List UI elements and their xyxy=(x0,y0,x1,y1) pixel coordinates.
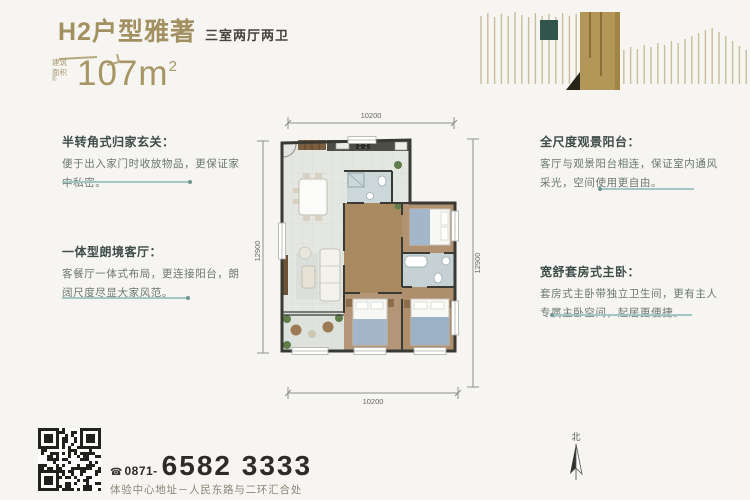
area-value: 107m2 xyxy=(77,56,178,91)
bathtub xyxy=(405,256,427,267)
plant xyxy=(394,161,402,169)
annotation-title: 全尺度观景阳台： xyxy=(540,133,722,150)
bathroom-sink xyxy=(367,193,374,200)
sofa xyxy=(320,249,340,301)
annotation-rule xyxy=(62,181,190,183)
area-superscript: 2 xyxy=(169,58,178,75)
balcony-table xyxy=(308,330,316,338)
registered-icon: ® xyxy=(52,77,56,83)
annotation-livingroom: 一体型朗境客厅： 客餐厅一体式布局，更连接阳台，朗阔尺度尽显大家风范。 xyxy=(62,243,244,303)
skyline-tower xyxy=(566,12,620,90)
fridge xyxy=(395,142,407,150)
dim-bottom-label: 10200 xyxy=(363,397,384,406)
phone-block: ☎ 0871- 6582 3333 xyxy=(110,452,312,480)
toilet xyxy=(434,273,442,283)
dim-right-label: 12900 xyxy=(473,253,482,274)
dim-top-label: 10200 xyxy=(361,111,382,120)
skyline-graphic xyxy=(478,0,750,100)
coffee-table xyxy=(302,266,315,288)
annotation-body: 套房式主卧带独立卫生间，更有主人专属主卧空间，起居更便捷。 xyxy=(540,285,722,323)
rule-dot xyxy=(186,296,190,300)
header: H2户型雅著 三室两厅两卫 xyxy=(58,12,289,48)
qr-code xyxy=(38,428,101,491)
annotation-entry: 半转角式归家玄关： 便于出入家门时收放物品，更保证家中私密。 xyxy=(62,133,244,193)
address-line: 体验中心地址－人民东路与二环汇合处 xyxy=(110,482,302,497)
nightstand xyxy=(346,299,352,307)
room-hallway xyxy=(344,203,402,293)
toilet xyxy=(378,176,386,186)
annotation-title: 宽舒套房式主卧： xyxy=(540,263,722,280)
tv-cabinet xyxy=(283,255,288,295)
armchair xyxy=(299,247,311,259)
page-subtitle: 三室两厅两卫 xyxy=(205,25,289,44)
annotation-body: 便于出入家门时收放物品，更保证家中私密。 xyxy=(62,155,244,193)
plant xyxy=(283,341,291,349)
poster: H2户型雅著 三室两厅两卫 建筑面积® 107m2 半转角式归家玄关： 便于出入… xyxy=(0,0,750,500)
nightstand xyxy=(388,299,394,307)
annotation-title: 半转角式归家玄关： xyxy=(62,133,244,150)
dim-left-label: 12900 xyxy=(253,241,262,262)
floorplan-svg: 10200 10200 12900 12900 xyxy=(252,103,484,408)
nightstand xyxy=(404,300,410,308)
rule-dot xyxy=(598,187,602,191)
bed-blanket xyxy=(353,319,387,345)
area-block: 建筑面积® 107m2 xyxy=(52,56,178,91)
bed-blanket xyxy=(411,317,449,345)
annotation-rule xyxy=(552,314,692,316)
phone-icon: ☎ xyxy=(110,467,122,478)
balcony-chair xyxy=(291,325,302,336)
plant xyxy=(283,315,291,323)
compass-icon: 北 xyxy=(556,428,596,488)
area-label: 建筑面积® xyxy=(52,58,69,87)
phone-prefix: 0871- xyxy=(124,464,157,478)
rule-dot xyxy=(188,180,192,184)
bathroom-sink xyxy=(442,257,450,265)
annotation-rule xyxy=(600,188,694,190)
page-title: H2户型雅著 xyxy=(58,12,196,48)
skyline-teal-square xyxy=(540,20,558,40)
annotation-rule xyxy=(62,297,188,299)
phone-number: 6582 3333 xyxy=(162,452,312,480)
annotation-balcony: 全尺度观景阳台： 客厅与观景阳台相连，保证室内通风采光，空间使用更自由。 xyxy=(540,133,722,193)
balcony-chair xyxy=(323,322,334,333)
bed-blanket xyxy=(410,209,430,245)
annotation-title: 一体型朗境客厅： xyxy=(62,243,244,260)
rule-dot xyxy=(550,313,554,317)
compass-label: 北 xyxy=(571,432,580,442)
dining-table xyxy=(299,179,327,215)
